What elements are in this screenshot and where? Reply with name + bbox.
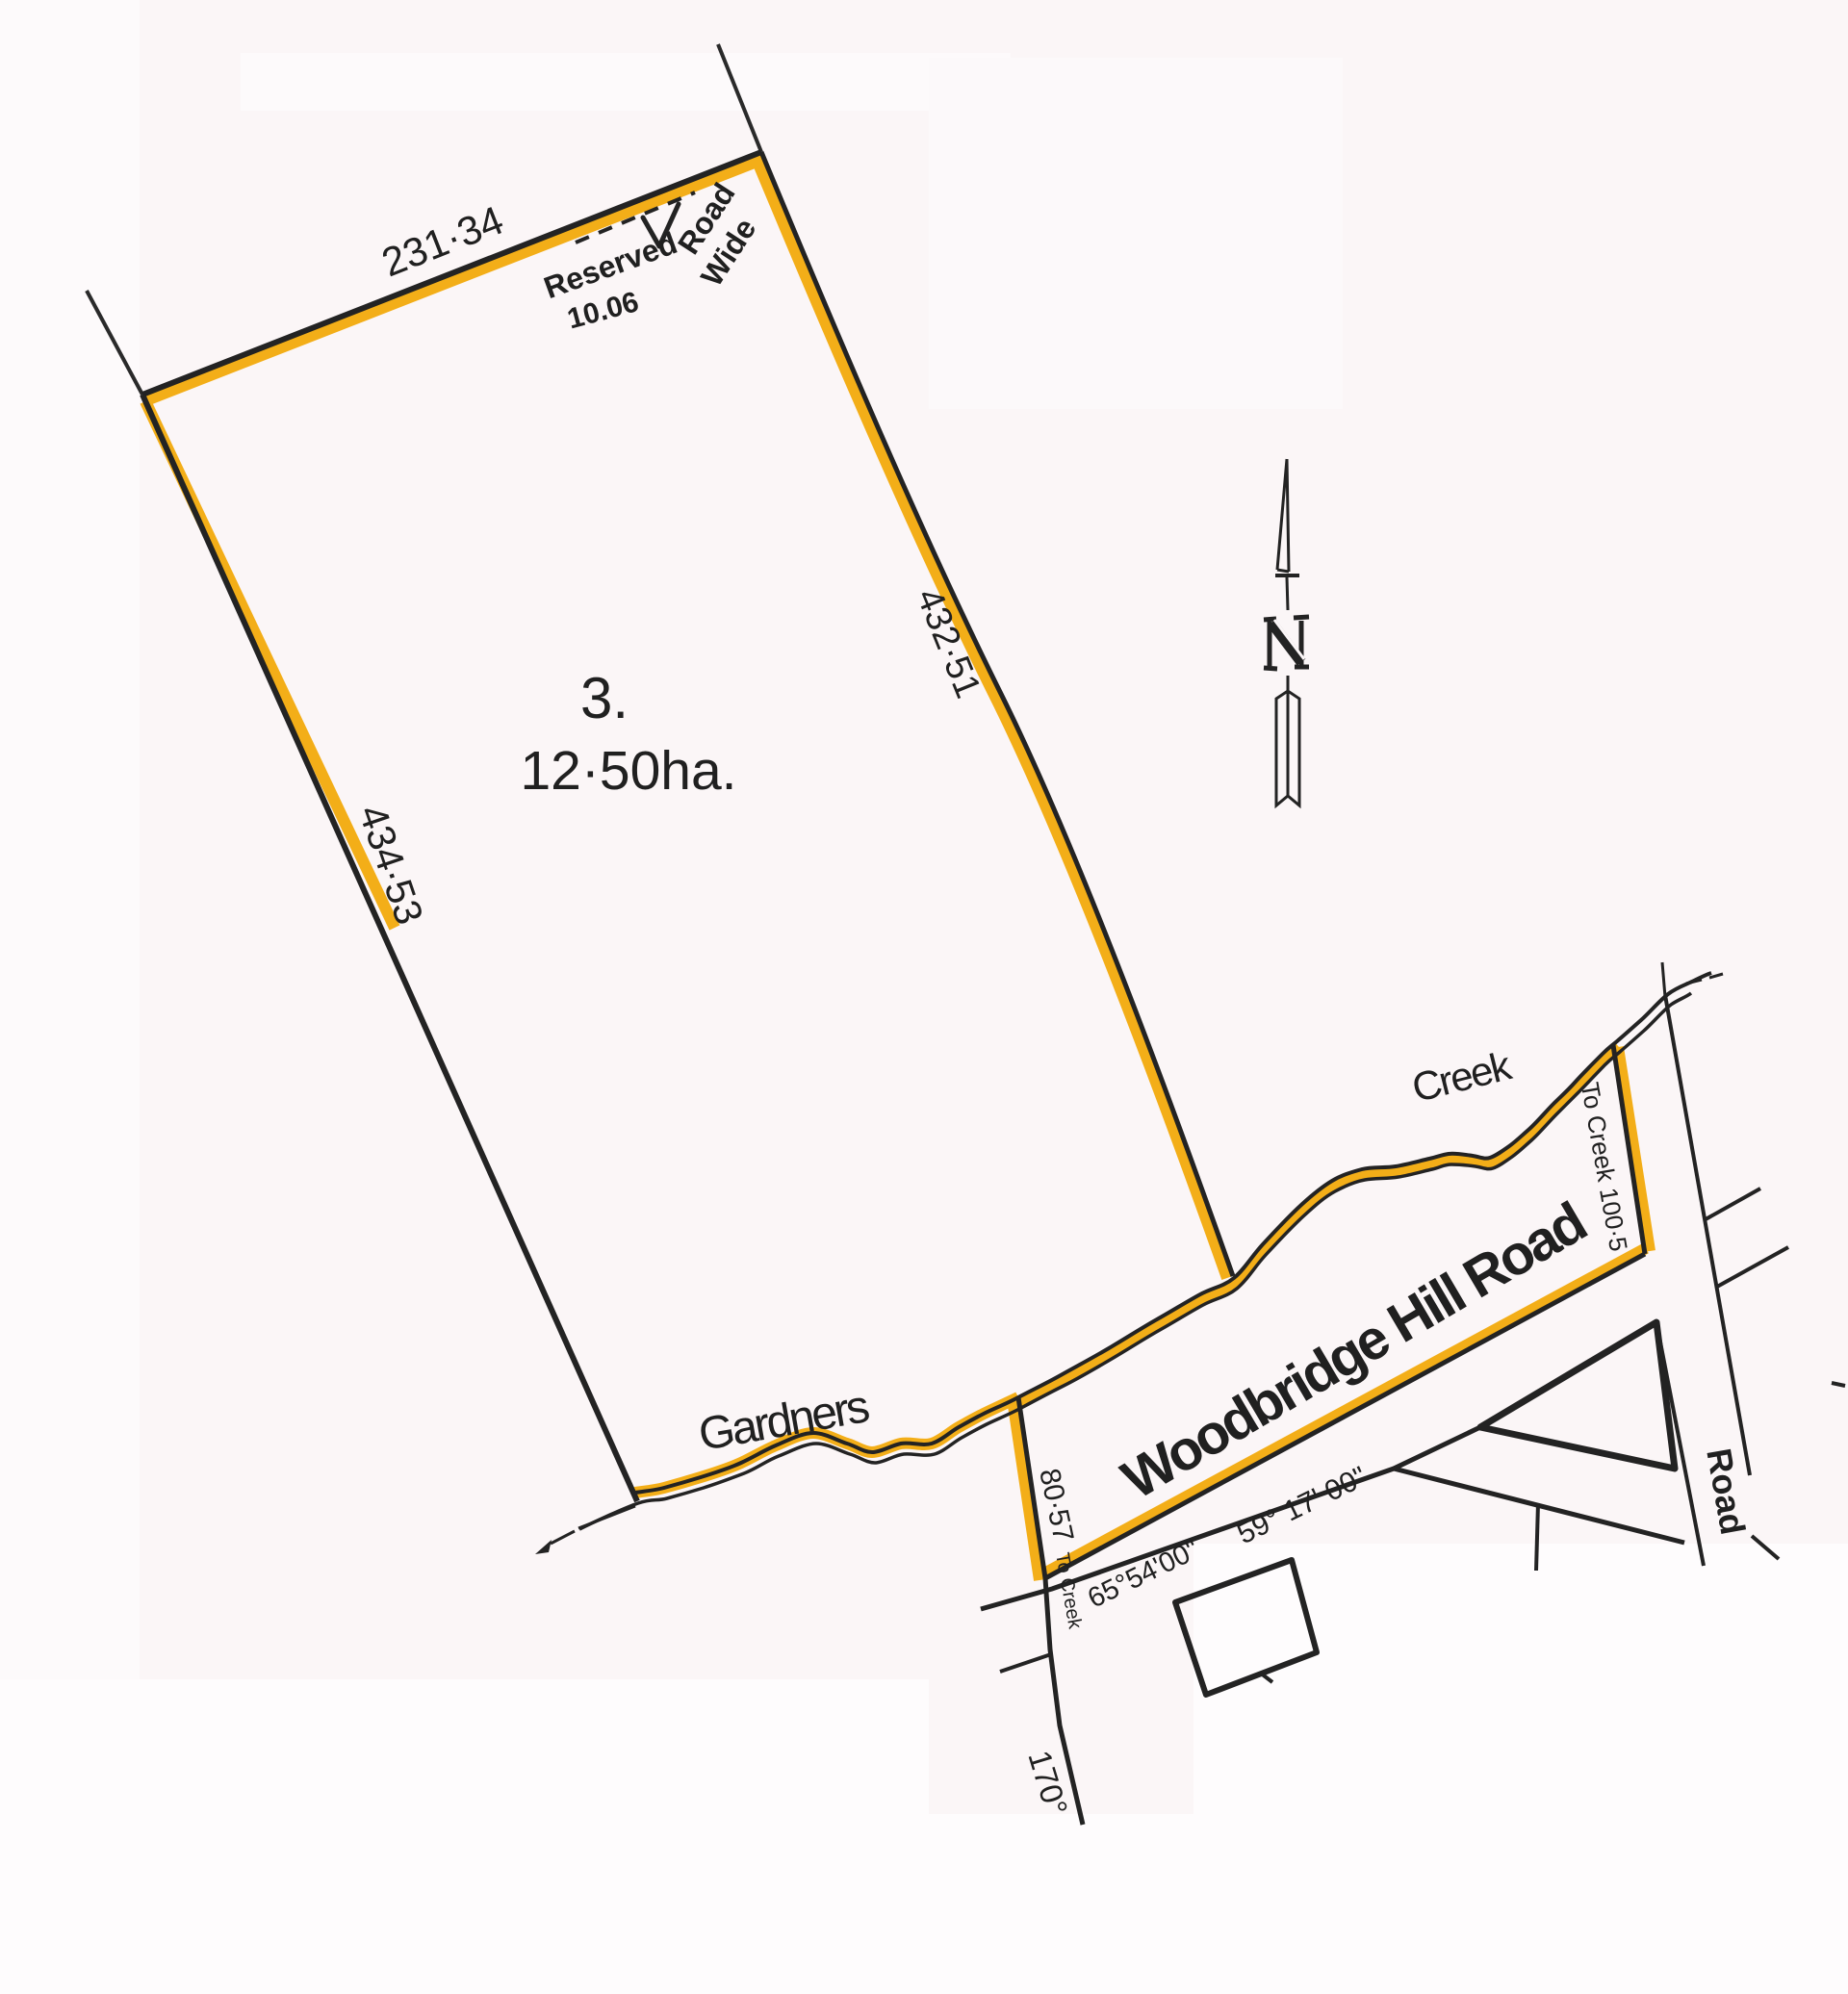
svg-text:3.: 3.	[580, 666, 629, 730]
svg-text:12·50ha.: 12·50ha.	[520, 740, 736, 802]
